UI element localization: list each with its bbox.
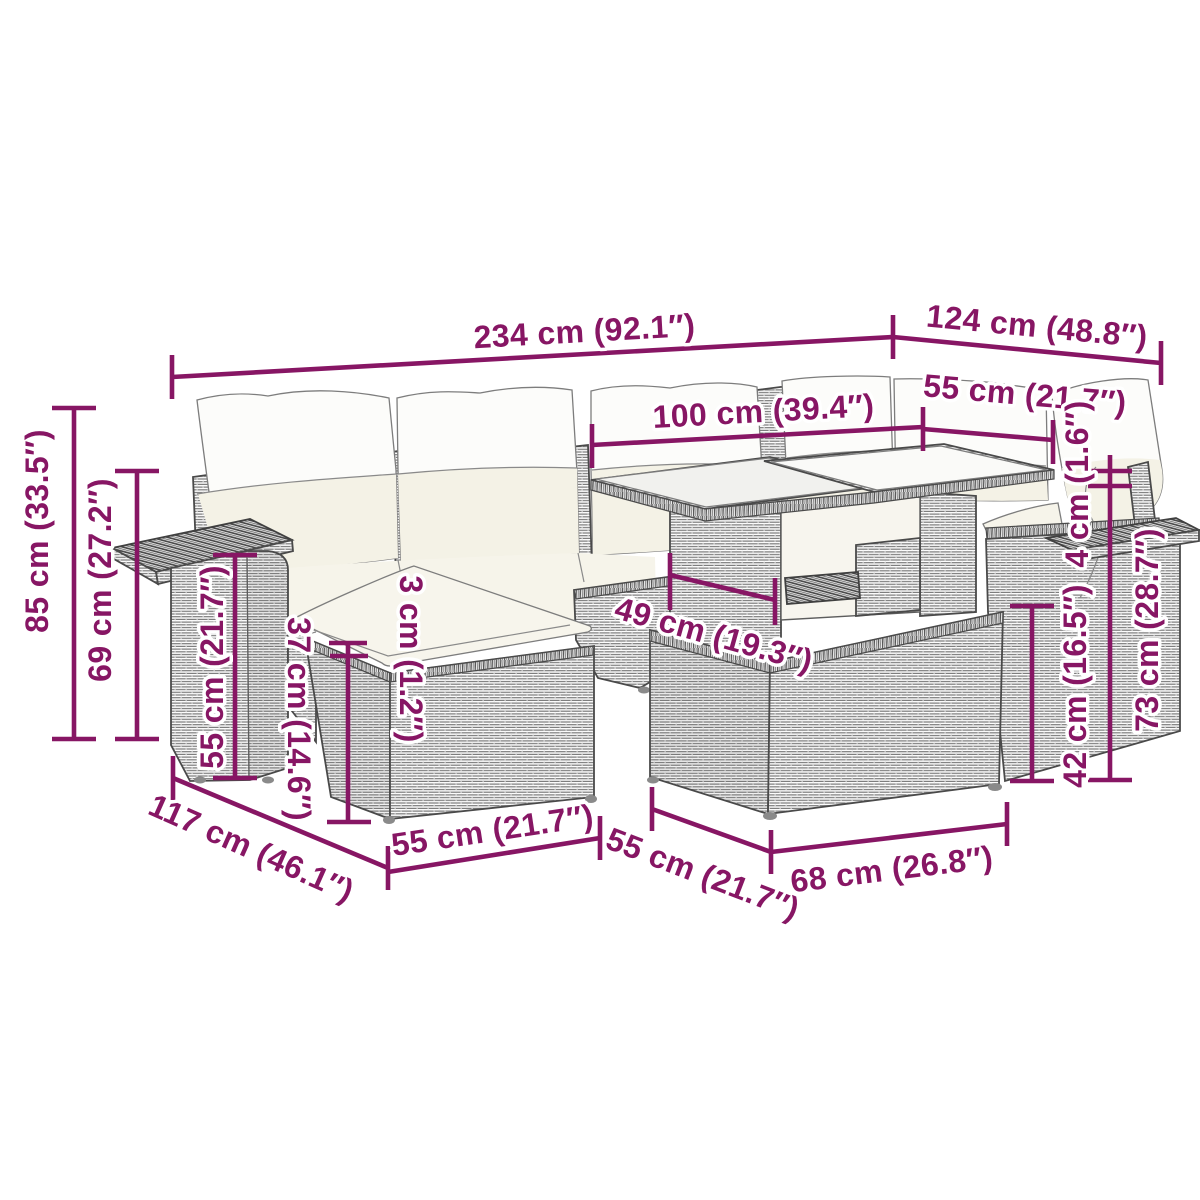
svg-text:69 cm (27.2″): 69 cm (27.2″) — [82, 478, 118, 682]
svg-text:37 cm (14.6″): 37 cm (14.6″) — [281, 617, 317, 821]
svg-text:73 cm (28.7″): 73 cm (28.7″) — [1129, 528, 1165, 732]
svg-text:4 cm (1.6″): 4 cm (1.6″) — [1059, 400, 1095, 567]
svg-text:85 cm (33.5″): 85 cm (33.5″) — [19, 429, 55, 633]
svg-text:55 cm (21.7″): 55 cm (21.7″) — [194, 565, 230, 769]
svg-text:42 cm (16.5″): 42 cm (16.5″) — [1057, 584, 1093, 788]
svg-text:3 cm (1.2″): 3 cm (1.2″) — [393, 575, 429, 742]
